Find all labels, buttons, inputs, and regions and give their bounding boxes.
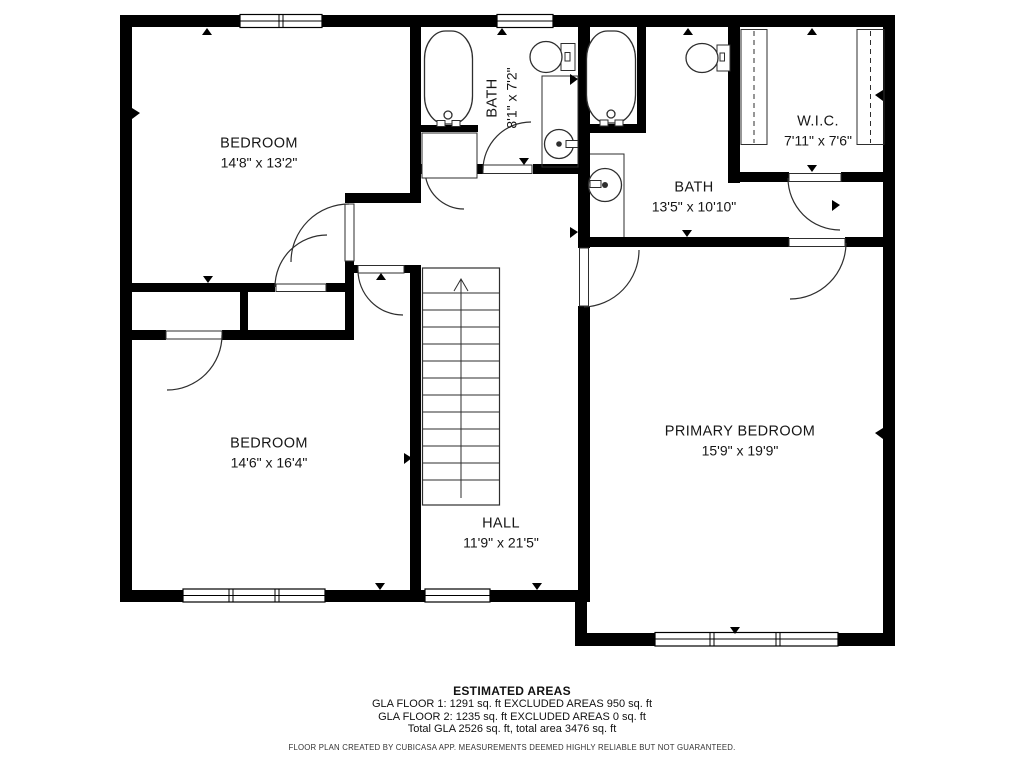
gla-floor-1: GLA FLOOR 1: 1291 sq. ft EXCLUDED AREAS … (0, 698, 1024, 711)
window (497, 15, 553, 28)
disclaimer-text: FLOOR PLAN CREATED BY CUBICASA APP. MEAS… (0, 743, 1024, 752)
room-name: W.I.C. (784, 113, 852, 132)
gla-floor-2: GLA FLOOR 2: 1235 sq. ft EXCLUDED AREAS … (0, 711, 1024, 724)
sink (542, 76, 578, 167)
window (655, 633, 838, 647)
stairs (423, 268, 500, 505)
window (240, 15, 322, 28)
room-name: BEDROOM (230, 435, 308, 454)
gla-total: Total GLA 2526 sq. ft, total area 3476 s… (0, 723, 1024, 736)
toilet (686, 44, 730, 73)
door-primary-bath (789, 239, 846, 300)
room-name: BATH (484, 67, 503, 128)
room-name: BEDROOM (220, 135, 298, 154)
door-bedroom-top-left (291, 204, 354, 262)
vanity (422, 133, 477, 178)
door-bedroom-bottom-left (358, 266, 404, 316)
room-dimensions: 11'9" x 21'5" (463, 534, 539, 552)
room-label-primary-bedroom: PRIMARY BEDROOM 15'9" x 19'9" (665, 423, 816, 460)
window (183, 589, 325, 602)
room-name: HALL (463, 515, 539, 534)
room-dimensions: 15'9" x 19'9" (665, 442, 816, 460)
toilet (530, 42, 575, 73)
sink (589, 154, 625, 237)
window (425, 589, 490, 602)
room-dimensions: 7'11" x 7'6" (784, 132, 852, 150)
room-dimensions: 14'8" x 13'2" (220, 154, 298, 172)
bathtub (587, 31, 636, 126)
room-dimensions: 8'1" x 7'2" (503, 67, 521, 128)
room-label-hall: HALL 11'9" x 21'5" (463, 515, 539, 552)
room-label-bedroom-top-left: BEDROOM 14'8" x 13'2" (220, 135, 298, 172)
door-bath-small (483, 122, 532, 174)
room-dimensions: 13'5" x 10'10" (652, 198, 737, 216)
closet-rail (857, 30, 884, 145)
door-closet-bedroom1 (275, 235, 327, 292)
estimated-areas-title: ESTIMATED AREAS (0, 684, 1024, 698)
room-label-bedroom-bottom-left: BEDROOM 14'6" x 16'4" (230, 435, 308, 472)
room-name: PRIMARY BEDROOM (665, 423, 816, 442)
room-label-bath-small: BATH 8'1" x 7'2" (484, 67, 521, 128)
estimated-areas-block: ESTIMATED AREAS GLA FLOOR 1: 1291 sq. ft… (0, 684, 1024, 736)
stairs-up-arrow (454, 279, 468, 498)
room-label-bath-primary: BATH 13'5" x 10'10" (652, 179, 737, 216)
floor-plan-page: BEDROOM 14'8" x 13'2" BATH 8'1" x 7'2" W… (0, 0, 1024, 768)
bathtub (425, 31, 473, 127)
room-dimensions: 14'6" x 16'4" (230, 454, 308, 472)
room-name: BATH (652, 179, 737, 198)
door-primary-bedroom (580, 248, 640, 307)
door-closet-bedroom2 (166, 331, 222, 390)
closet-rail (741, 30, 767, 145)
room-label-wic: W.I.C. 7'11" x 7'6" (784, 113, 852, 150)
